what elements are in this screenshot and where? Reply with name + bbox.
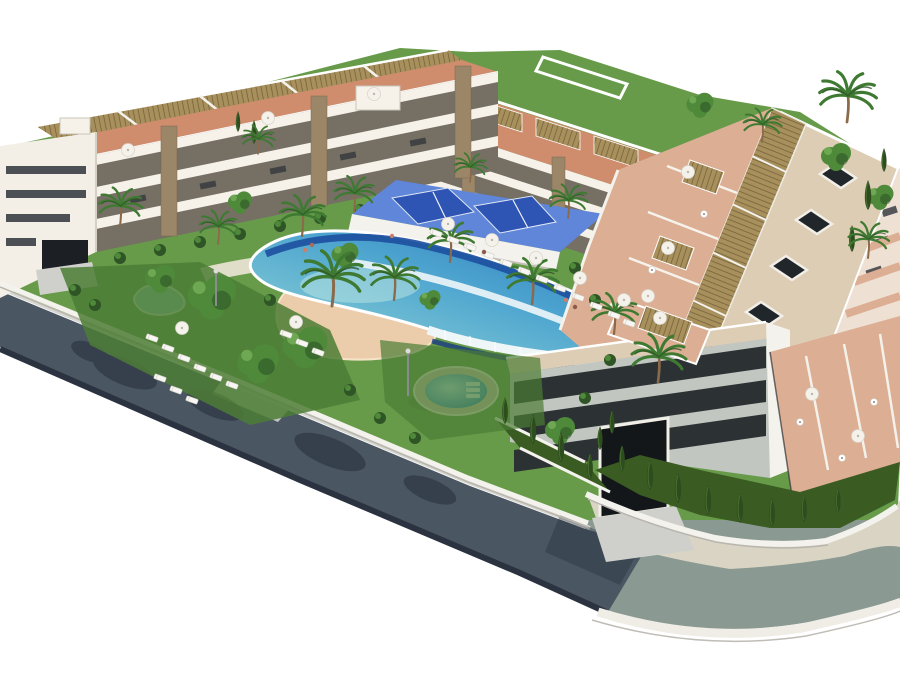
bush (89, 299, 101, 311)
person (573, 305, 577, 309)
lamp-head (214, 269, 219, 274)
parasol (530, 252, 543, 265)
parasol (176, 322, 189, 335)
bush (194, 236, 206, 248)
parasol (642, 290, 655, 303)
bush (264, 294, 276, 306)
table (701, 211, 708, 218)
person (310, 243, 314, 247)
architectural-render (0, 0, 900, 675)
parasol (662, 242, 675, 255)
parasol (290, 316, 303, 329)
bush (579, 392, 591, 404)
parasol (852, 430, 865, 443)
rooftop-box-small (60, 118, 90, 134)
lamp-head (406, 349, 411, 354)
person (390, 234, 394, 238)
bush (114, 252, 126, 264)
parasol (486, 234, 499, 247)
table (797, 419, 804, 426)
bush (69, 284, 81, 296)
bush (374, 412, 386, 424)
bush (409, 432, 421, 444)
parasol (618, 294, 631, 307)
table (649, 267, 656, 274)
bush (234, 228, 246, 240)
bush (344, 384, 356, 396)
parasol (368, 88, 381, 101)
bush (154, 244, 166, 256)
parasol (442, 218, 455, 231)
bush (604, 354, 616, 366)
table (839, 455, 846, 462)
parasol (682, 166, 695, 179)
table (871, 399, 878, 406)
parasol (806, 388, 819, 401)
person (564, 298, 568, 302)
person (303, 248, 307, 252)
parasol (122, 144, 135, 157)
parasol (574, 272, 587, 285)
parasol (654, 312, 667, 325)
parasol (262, 112, 275, 125)
render-viewport (0, 0, 900, 675)
person (482, 250, 486, 254)
